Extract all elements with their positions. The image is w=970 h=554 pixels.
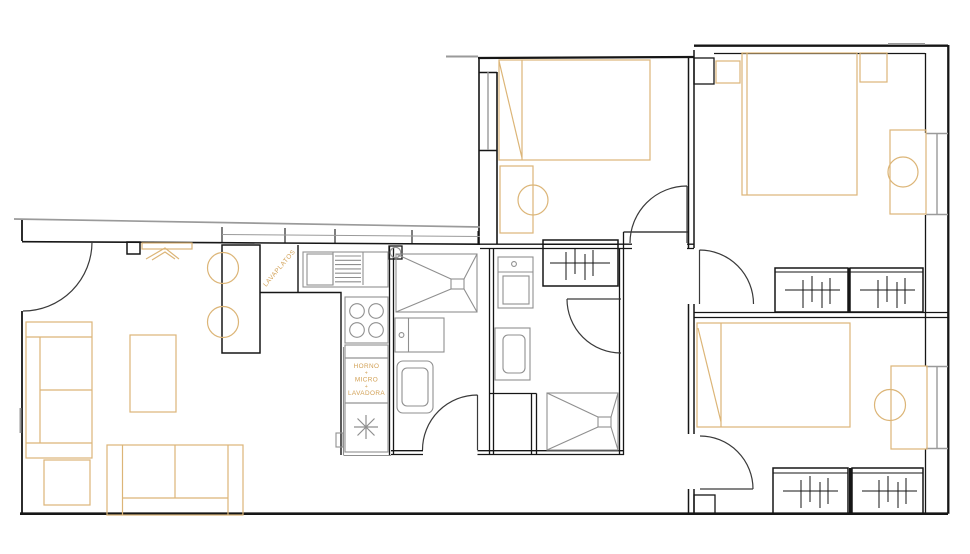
labels-layer: LAVAPLATOS HORNO + MICRO + LAVADORA [262, 249, 385, 397]
window-band-outer [14, 219, 480, 227]
nightstand-right [860, 53, 887, 82]
dish-rack [333, 252, 363, 285]
bathroom1-door [423, 395, 478, 450]
appliance-line-3: MICRO [355, 377, 378, 384]
hall-closet [543, 240, 618, 286]
dishwasher-label: LAVAPLATOS [262, 249, 297, 289]
side-table [44, 460, 90, 505]
wall-pier [694, 58, 714, 84]
appliance-line-5: LAVADORA [348, 390, 385, 397]
desk-bedroom1 [500, 166, 533, 233]
sofa-horizontal [107, 445, 243, 515]
wall-spine [689, 50, 695, 513]
desk-bedroom3 [891, 366, 927, 449]
appliance-line-1: HORNO [354, 363, 380, 370]
desk-bedroom2 [890, 130, 926, 214]
floor-plan-drawing: LAVAPLATOS HORNO + MICRO + LAVADORA [0, 0, 970, 554]
bar-stool-2 [208, 307, 239, 338]
coat-rack [142, 243, 192, 260]
window-band-glazing [222, 235, 480, 237]
bedroom1-door [630, 186, 687, 243]
fridge-snowflake [354, 415, 378, 439]
kitchen-sink-unit [303, 252, 388, 287]
wall-top-inner [22, 242, 480, 245]
wall-bath-south [391, 451, 624, 455]
chair-bedroom3 [875, 390, 906, 421]
coffee-table [130, 335, 176, 412]
walls-layer [20, 45, 948, 514]
counter-box [345, 345, 388, 358]
wall-kitchen-bath1 [390, 246, 394, 455]
bedroom3-door [700, 436, 753, 489]
bar-stool-1 [208, 253, 239, 284]
fridge-handle [336, 433, 343, 447]
windows-layer [14, 44, 948, 449]
sofa-vertical [26, 322, 92, 458]
washbasin-1 [395, 318, 444, 352]
wall-bedroom2-south [694, 313, 948, 318]
column [694, 495, 715, 514]
bathroom2-door [567, 299, 621, 353]
entrance-door-swing [23, 242, 92, 311]
fixtures-layer [303, 247, 618, 455]
wall-bath1-bath2 [490, 248, 494, 455]
bedroom3-window [926, 366, 948, 449]
duct-shaft [490, 394, 537, 456]
bed-bedroom3 [697, 323, 850, 427]
toilet-2 [495, 328, 530, 380]
electrical-box [127, 242, 140, 254]
chair-bedroom2 [888, 157, 918, 187]
toilet-1 [397, 361, 433, 413]
bedroom2-wardrobes [775, 268, 923, 312]
bedroom2-window [926, 133, 948, 215]
bed-bedroom1 [499, 60, 650, 160]
wall-bedroom1-north [478, 57, 694, 58]
appliance-stack-label: HORNO + MICRO + LAVADORA [348, 363, 385, 397]
closet-hanging-rail [550, 248, 610, 280]
shower-tray-1 [396, 254, 477, 312]
stove-burners [345, 297, 388, 343]
bedroom3-wardrobes [773, 468, 923, 514]
double-bed-bedroom2 [742, 53, 857, 195]
wall-bath2-corridor [620, 232, 690, 455]
bedroom2-door [700, 250, 754, 304]
washbasin-2 [498, 257, 533, 308]
floor-plan-page: LAVAPLATOS HORNO + MICRO + LAVADORA [0, 0, 970, 554]
nightstand-left [716, 61, 740, 83]
shower-tray-2 [547, 393, 618, 450]
